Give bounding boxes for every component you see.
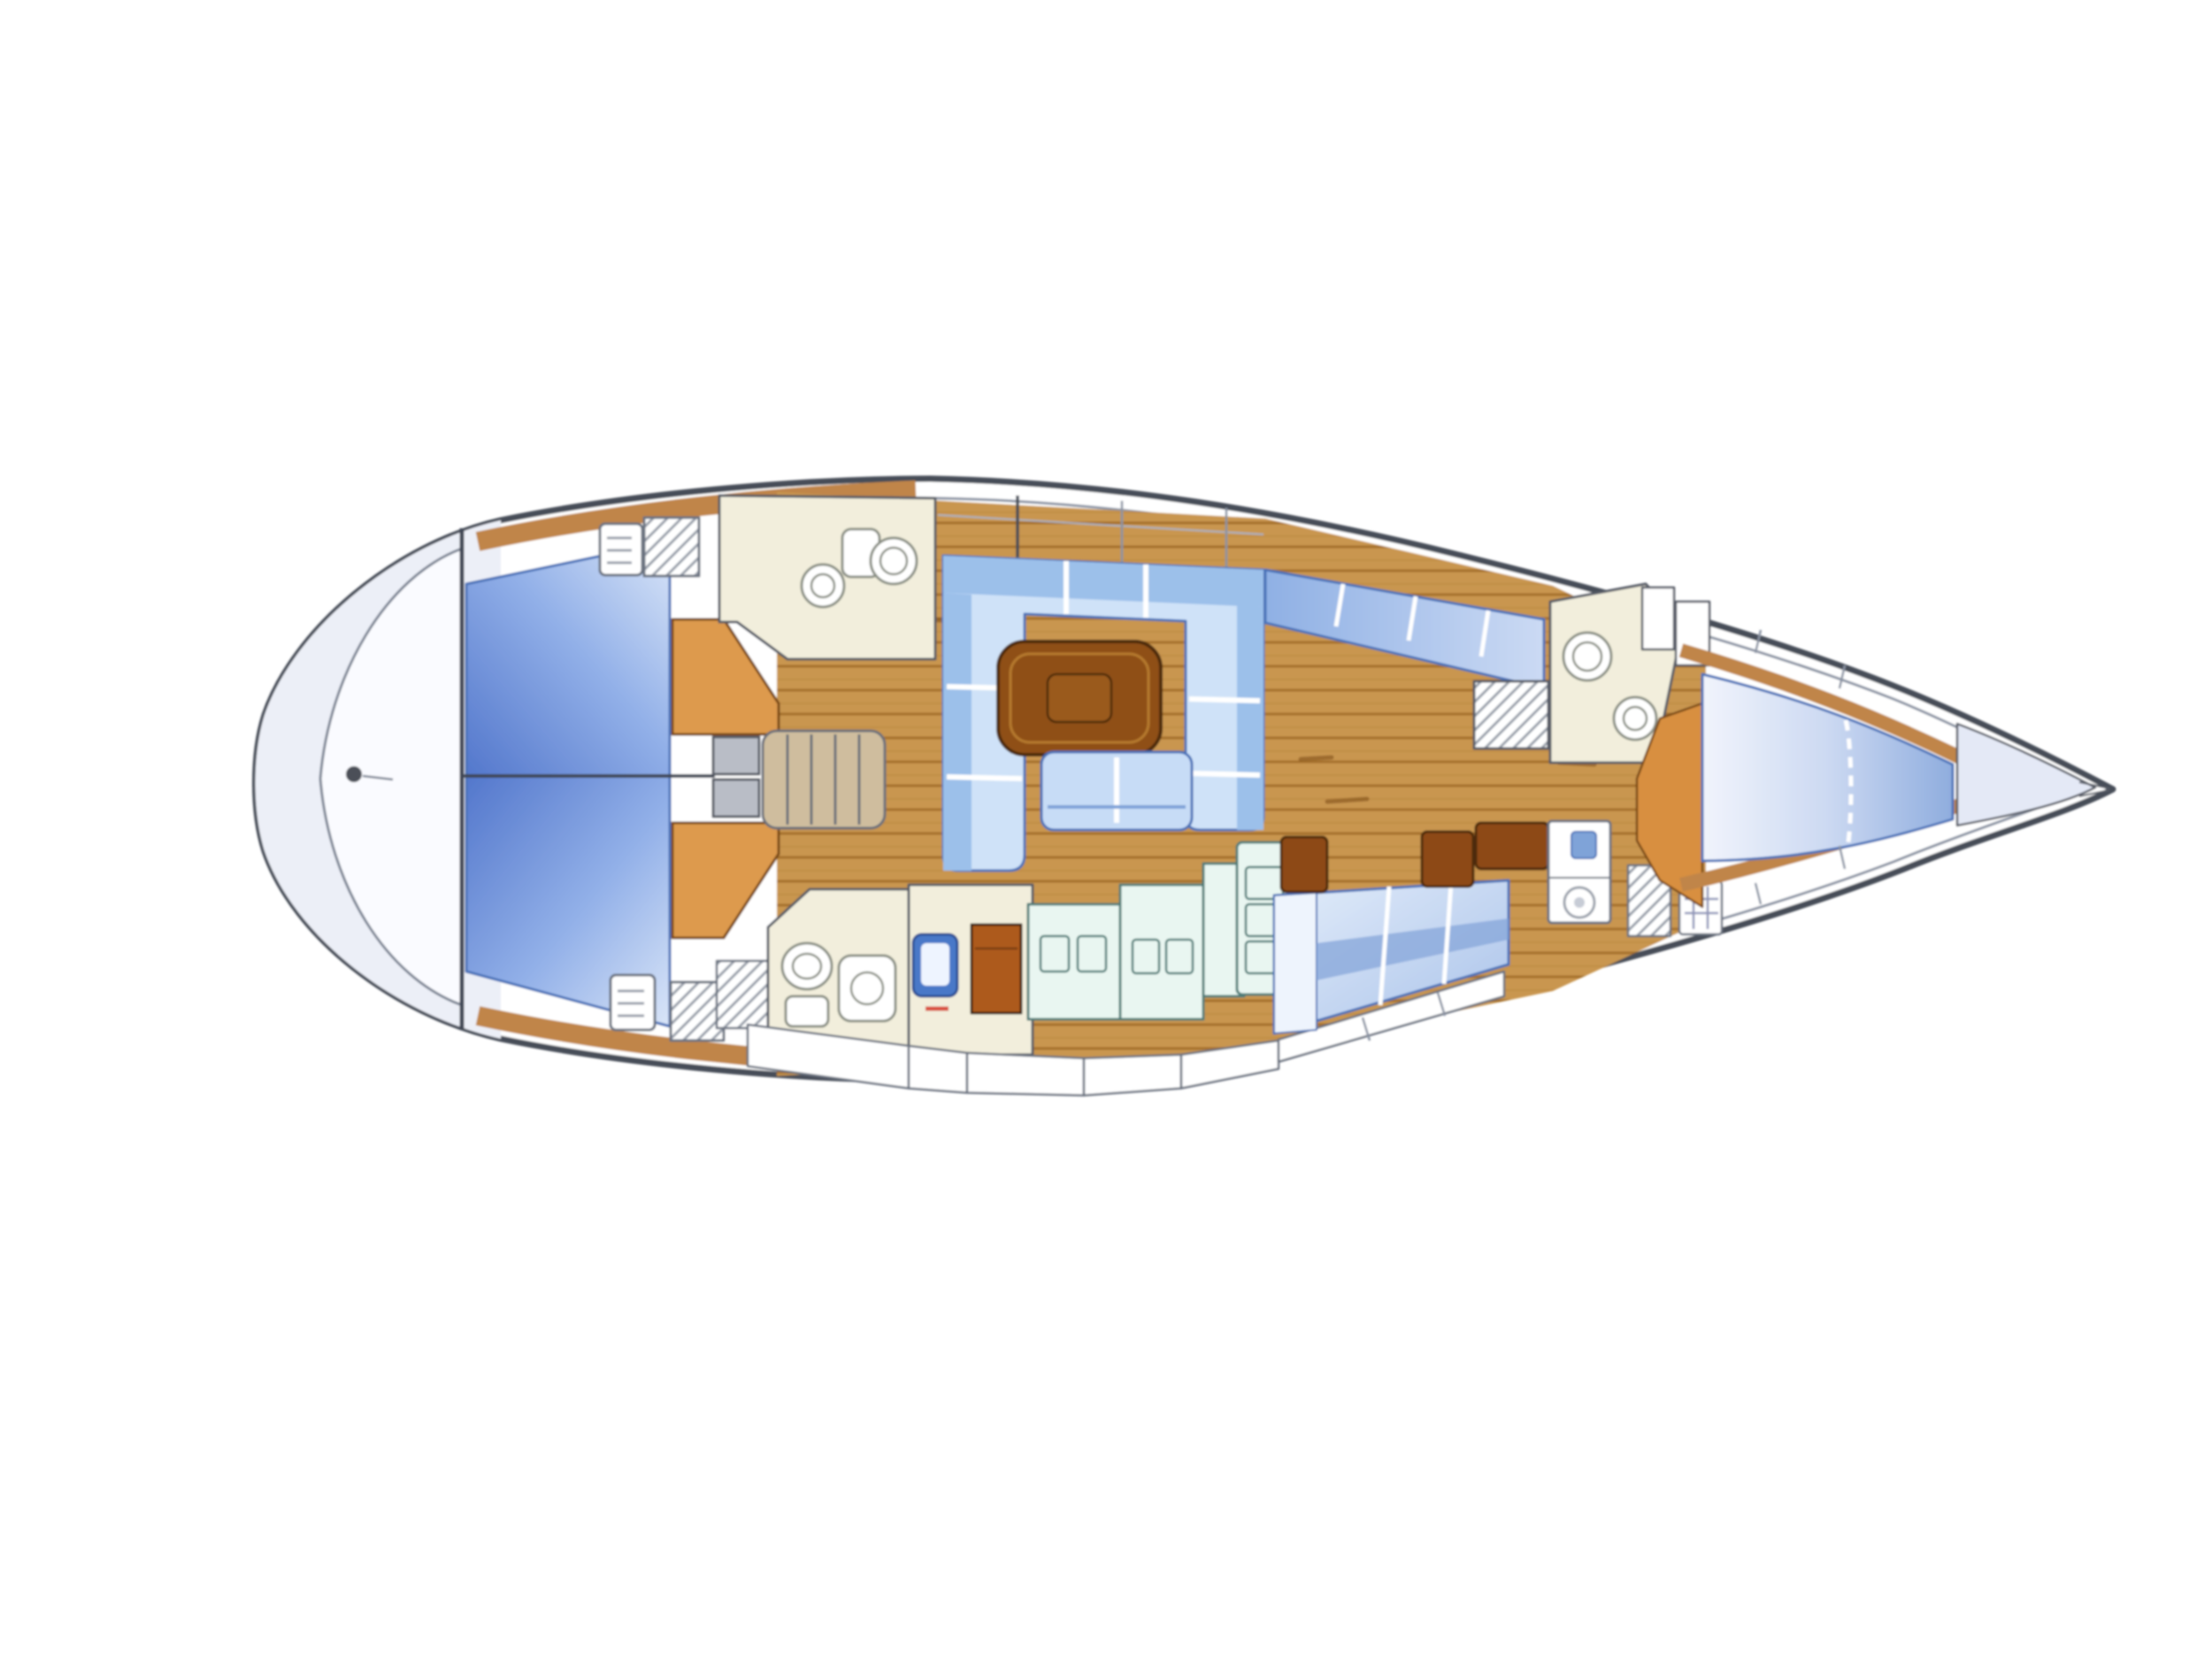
forward-shelf-box — [1642, 588, 1674, 649]
yacht-deck-plan — [0, 0, 2212, 1659]
settee-back-cushion — [1237, 605, 1263, 830]
galley-stove — [972, 925, 1021, 1013]
sole-knot — [1327, 799, 1367, 802]
toilet-bowl — [1563, 633, 1611, 680]
cushion-divider — [947, 777, 1022, 779]
hull-locker-strip — [909, 1046, 967, 1093]
sofa-pillow — [1274, 893, 1317, 1033]
port-aft-cabin-berth — [466, 541, 670, 776]
galley-sink-basin — [921, 943, 949, 986]
deck-plan-svg — [0, 0, 2212, 1659]
transom-fitting-dot — [346, 766, 362, 782]
port-hanging-locker — [644, 518, 699, 576]
salon-table-leaf — [1048, 674, 1111, 722]
hull-locker-strip — [1084, 1055, 1181, 1095]
settee-back-cushion — [943, 593, 972, 871]
toilet-bowl — [782, 943, 832, 989]
boat-drawing — [256, 479, 2114, 1095]
toilet-bowl — [871, 538, 917, 584]
side-table — [1281, 837, 1327, 892]
washbasin-counter — [839, 956, 895, 1021]
locker-glyph-blue — [1571, 832, 1596, 858]
toilet-tank — [786, 996, 828, 1026]
forward-hanging-locker — [1474, 681, 1548, 749]
starboard-berth-foot-locker — [717, 961, 770, 1028]
washbasin — [1614, 697, 1656, 740]
engine-access-box — [713, 737, 759, 774]
companionway-steps — [763, 731, 885, 828]
cushion-divider — [1189, 699, 1260, 701]
hull-locker-strip — [967, 1053, 1084, 1095]
side-shelf — [1476, 823, 1548, 869]
locker-glyph-circle-inner — [1574, 897, 1585, 908]
sole-knot — [1301, 757, 1332, 759]
washbasin — [802, 565, 844, 607]
side-table — [1422, 832, 1473, 887]
engine-access-box — [713, 780, 759, 817]
cushion-divider — [1189, 773, 1260, 775]
